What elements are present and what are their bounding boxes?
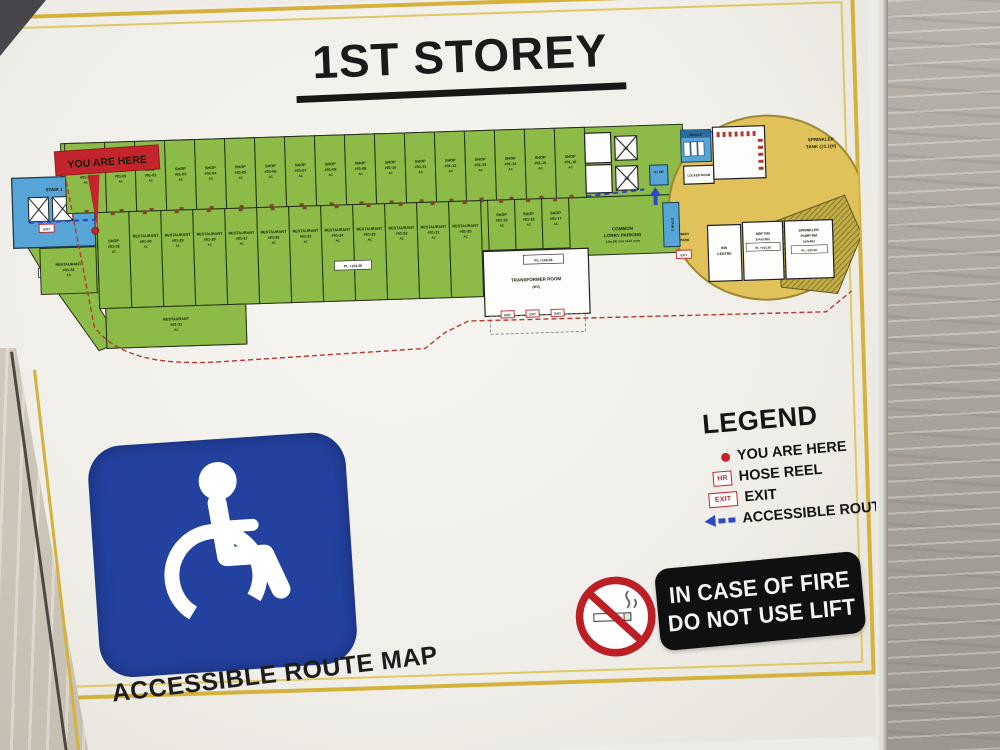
unit-label: #01-20 xyxy=(460,229,472,233)
mdf-room: MDF RM 3x4x3.5(h) PL +104.36 xyxy=(742,221,784,280)
unit-label: #01-27 xyxy=(236,236,248,240)
unit-label: SHOP xyxy=(385,160,396,164)
sign-edge xyxy=(876,0,888,750)
lift-1-label: L.1 xyxy=(623,147,628,151)
accessible-route-arrow-icon xyxy=(704,513,736,528)
svg-text:PL +105.40: PL +105.40 xyxy=(801,248,817,252)
unit-label: #01-18 xyxy=(523,217,535,221)
svg-text:TANK @1.1(H): TANK @1.1(H) xyxy=(806,143,837,149)
unit-cell xyxy=(257,207,292,304)
sign-face: 1ST STOREY xyxy=(0,0,890,750)
fire-notice: IN CASE OF FIRE DO NOT USE LIFT xyxy=(654,551,867,652)
unit-label: #01-08 xyxy=(325,168,337,172)
unit-cell xyxy=(225,208,260,305)
unit-label: #01-23 xyxy=(364,232,376,236)
unit-cell xyxy=(417,202,452,299)
unit-label: #01-03 xyxy=(175,172,187,176)
svg-text:BIN: BIN xyxy=(721,246,728,250)
unit-label: SHOP xyxy=(265,164,276,168)
unit-label: #01-04 xyxy=(205,171,218,175)
lift-2-label: L.2 xyxy=(624,177,629,181)
svg-text:EXIT: EXIT xyxy=(680,253,687,257)
unit-label: RESTAURANT xyxy=(55,262,82,267)
sprinkler-tank-label: SPRINKLER xyxy=(808,136,835,142)
unit-cell xyxy=(129,211,164,308)
unit-label: #01-32 xyxy=(108,244,120,248)
unit-label: #01-10 xyxy=(384,166,396,170)
unit-label: #01-09 xyxy=(355,167,367,171)
inner-shop-row: SHOP#01-19ACSHOP#01-18ACSHOP#01-17AC xyxy=(488,197,571,251)
unit-label: SHOP xyxy=(355,161,366,165)
unit-label: #01-15 xyxy=(534,161,546,165)
svg-text:EXIT: EXIT xyxy=(43,227,50,231)
photo-of-floor-directory-sign: 1ST STOREY xyxy=(0,0,1000,750)
wall-right xyxy=(888,0,1000,750)
unit-label: SHOP xyxy=(235,165,246,169)
unit-label: SHOP xyxy=(415,159,426,163)
unit-cell xyxy=(193,209,228,306)
unit-label: SHOP xyxy=(445,158,456,162)
bicycle-room xyxy=(712,126,766,180)
unit-cell xyxy=(161,210,196,307)
unit-label: SHOP xyxy=(523,212,534,216)
ht-switch-room: HT SW xyxy=(650,165,669,186)
svg-text:EXIT: EXIT xyxy=(529,312,536,316)
svg-text:MDF RM: MDF RM xyxy=(756,232,770,236)
unit-label: #01-02 xyxy=(145,173,157,177)
unit-cell xyxy=(321,205,356,302)
unit-label: RESTAURANT xyxy=(324,228,351,233)
svg-text:EXIT: EXIT xyxy=(554,311,561,315)
unit-label: SHOP xyxy=(205,166,216,170)
unit-label: #01-30 xyxy=(140,239,152,243)
unit-label: SHOP xyxy=(535,156,546,160)
sign-board: 1ST STOREY xyxy=(0,0,878,750)
svg-text:EXIT: EXIT xyxy=(504,313,511,317)
exit-badges-transformer: EXIT EXIT EXIT xyxy=(501,309,564,318)
unit-label: #01-11 xyxy=(415,165,427,169)
unit-label: SHOP xyxy=(175,167,186,171)
svg-text:LOCKER ROOM: LOCKER ROOM xyxy=(687,173,710,178)
unit-label: RESTAURANT xyxy=(164,233,191,238)
svg-text:PL +104.36: PL +104.36 xyxy=(344,264,362,269)
unit-label: #01-12 xyxy=(444,164,456,168)
bin-centre: BIN CENTRE xyxy=(707,224,742,281)
unit-cell xyxy=(385,203,420,300)
svg-text:PL +104.36: PL +104.36 xyxy=(534,258,552,263)
unit-label: RESTAURANT xyxy=(356,227,383,232)
unit-label: SHOP xyxy=(108,239,119,243)
unit-label: #01-33 xyxy=(63,268,75,272)
unit-label: #01-21 xyxy=(428,230,440,234)
unit-label: SHOP xyxy=(550,211,561,215)
unit-cell xyxy=(289,206,324,303)
unit-label: #01-16 xyxy=(564,160,576,164)
unit-label: #01-28 xyxy=(204,237,216,241)
unit-label: SHOP xyxy=(325,162,336,166)
unit-label: #01-25 xyxy=(300,234,312,238)
wheelchair-icon xyxy=(111,446,334,659)
unit-label: RESTAURANT xyxy=(132,234,159,239)
unit-label: RESTAURANT xyxy=(228,231,255,236)
unit-label: RESTAURANT xyxy=(260,230,287,235)
svg-text:STAIR 2: STAIR 2 xyxy=(670,218,674,231)
unit-label: #01-05 xyxy=(235,170,247,174)
unit-label: #01-31 xyxy=(170,323,182,327)
svg-text:PUMP RM: PUMP RM xyxy=(801,234,818,239)
hose-reel-icon: HR xyxy=(712,470,732,487)
unit-label: SHOP xyxy=(565,155,576,159)
floor-plan: GREEN HILL SPRINKLER TANK @1.1(H) COMMON… xyxy=(0,93,864,396)
accessibility-symbol xyxy=(86,431,359,680)
svg-text:FEMALE: FEMALE xyxy=(689,133,701,137)
unit-label: SHOP xyxy=(505,156,516,160)
svg-text:HT SW: HT SW xyxy=(654,170,664,174)
unit-label: #01-13 xyxy=(474,163,486,167)
unit-label: RESTAURANT xyxy=(388,226,415,231)
locker-room: LOCKER ROOM xyxy=(684,165,715,184)
restaurant-row: RESTAURANT#01-30ACRESTAURANT#01-29ACREST… xyxy=(129,200,484,308)
stair-2-block: STAIR 2 xyxy=(663,202,680,246)
unit-label: RESTAURANT xyxy=(292,229,319,234)
unit-label: #01-14 xyxy=(504,162,517,166)
svg-text:3x4x3.5(h): 3x4x3.5(h) xyxy=(755,237,770,241)
transformer-room: PL +104.36 TRANSFORMER ROOM (MV) EXIT EX… xyxy=(483,248,591,334)
svg-text:SPRINKLER: SPRINKLER xyxy=(798,228,819,233)
unit-label: #01-01 xyxy=(115,174,127,178)
unit-label: #01-06 xyxy=(265,170,277,174)
sprinkler-pump-room: SPRINKLER PUMP RM 3x5x4(h) PL +105.40 xyxy=(784,220,834,279)
svg-text:CENTRE: CENTRE xyxy=(717,252,732,256)
unit-label: RESTAURANT xyxy=(163,317,190,322)
svg-text:(MV): (MV) xyxy=(532,285,540,289)
unit-label: #01-22 xyxy=(396,231,408,235)
pl-level-box: PL +104.36 xyxy=(334,260,371,270)
unit-label: RESTAURANT xyxy=(196,232,223,237)
page-title: 1ST STOREY xyxy=(294,22,627,103)
unit-cell xyxy=(97,212,132,309)
exit-icon: EXIT xyxy=(708,490,738,507)
unit-label: SHOP xyxy=(475,157,486,161)
unit-label: SHOP xyxy=(496,213,507,217)
no-smoking-icon xyxy=(572,573,659,660)
stair-1-label: STAIR 1 xyxy=(45,187,63,193)
unit-label: #01-26 xyxy=(268,235,280,239)
unit-label: #01-17 xyxy=(550,217,562,221)
unit-cell xyxy=(449,201,484,298)
unit-label: SHOP xyxy=(295,163,306,167)
svg-text:COMMON: COMMON xyxy=(612,226,633,232)
unit-label: #01-07 xyxy=(295,169,307,173)
unit-label: #01-24 xyxy=(332,233,345,237)
red-dot-icon xyxy=(721,452,731,462)
unit-label: #01-29 xyxy=(172,238,184,242)
female-toilet: FEMALE xyxy=(680,129,711,162)
unit-cell xyxy=(353,204,388,301)
svg-text:3x5x4(h): 3x5x4(h) xyxy=(803,239,815,243)
unit-label: RESTAURANT xyxy=(420,225,447,230)
unit-label: #01-19 xyxy=(496,218,508,222)
svg-text:PL +104.36: PL +104.36 xyxy=(755,246,771,250)
unit-label: RESTAURANT xyxy=(452,224,479,229)
